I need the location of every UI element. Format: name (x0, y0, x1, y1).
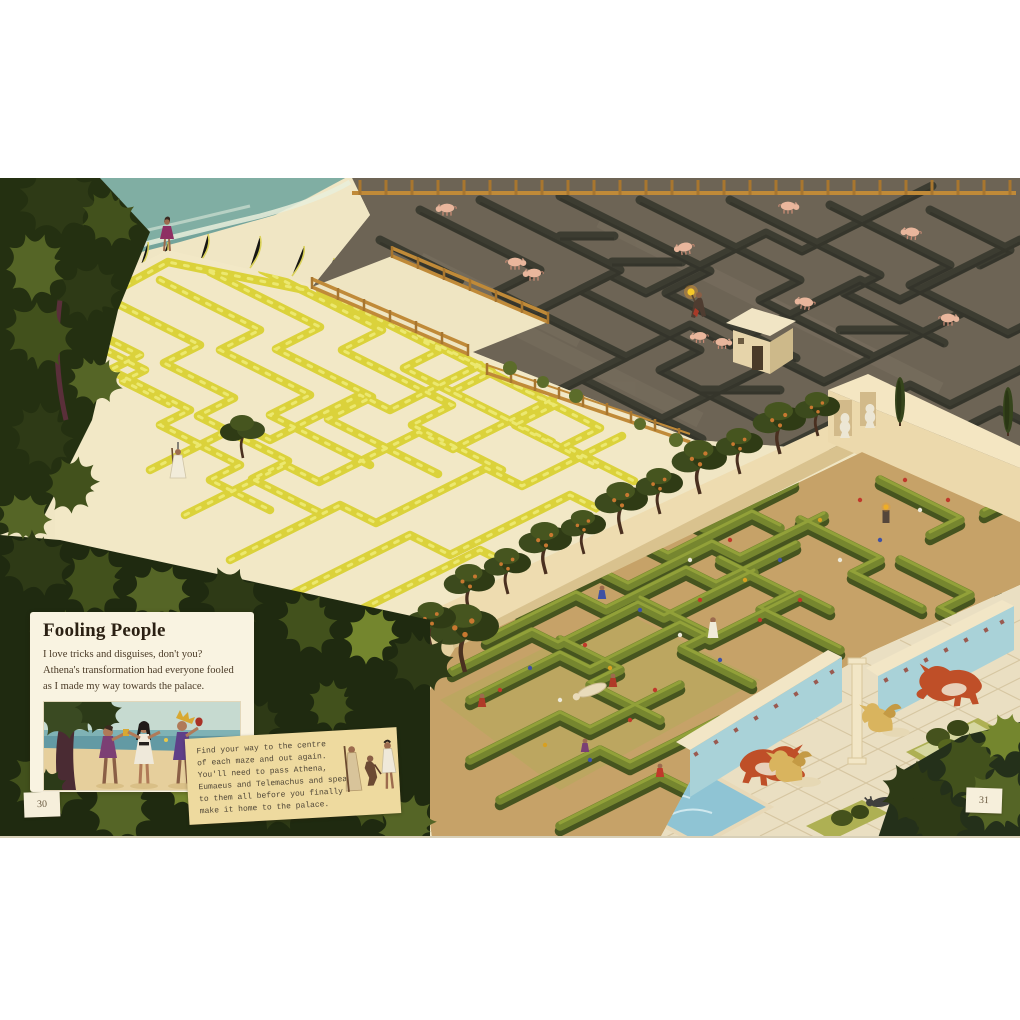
info-box-title: Fooling People (43, 621, 241, 641)
task-note: Find your way to the centre of each maze… (185, 727, 401, 825)
page-number-left: 30 (24, 791, 61, 817)
page-number-right: 31 (966, 787, 1003, 813)
page-number-text: 31 (979, 795, 989, 806)
task-note-figures (343, 735, 399, 806)
white-tunic-figure (380, 740, 397, 789)
info-box-text: Athena's transformation had everyone foo… (43, 663, 241, 679)
book-page-photo: Fooling People I love tricks and disguis… (0, 0, 1020, 1020)
robed-figure-with-staff (343, 745, 362, 792)
page-number-text: 30 (37, 799, 47, 810)
info-box-text: I love tricks and disguises, don't you? (43, 647, 241, 663)
info-box-text: as I made my way towards the palace. (43, 679, 241, 695)
garden-altar (881, 502, 890, 523)
crouching-figure (364, 755, 382, 786)
